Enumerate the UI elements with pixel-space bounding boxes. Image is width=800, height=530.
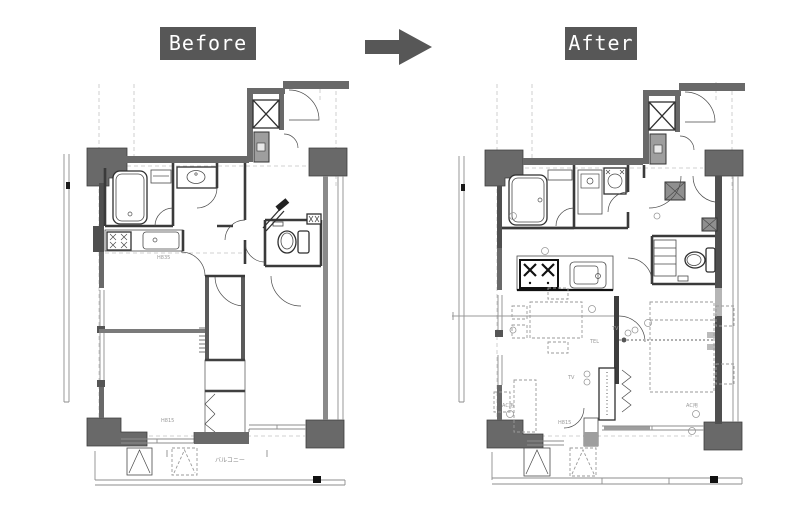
arrow-right-icon xyxy=(365,24,435,70)
bedroom-ac-label: AC用 xyxy=(686,403,698,409)
before-after-comparison: Before After xyxy=(0,0,800,530)
dining-table xyxy=(530,302,582,338)
before-label: Before xyxy=(160,27,256,60)
vanity xyxy=(578,170,602,214)
after-label: After xyxy=(565,27,637,60)
right-exterior-wall xyxy=(715,176,738,424)
window-height-label: H815 xyxy=(558,420,571,426)
room-divider-wall xyxy=(99,329,205,333)
accordion-partition xyxy=(622,370,631,412)
tel-label: TEL xyxy=(589,339,599,345)
washroom-door-arc xyxy=(197,188,217,208)
after-floor-plan: TEL TV TV AC用 AC用 xyxy=(452,80,764,504)
kitchen-island xyxy=(517,256,613,290)
entrance-door-arc xyxy=(685,92,715,122)
toilet-room xyxy=(628,236,715,284)
ac-unit-outdoor xyxy=(127,448,152,475)
exterior-pipe-lines xyxy=(459,156,465,402)
column-bottom-right xyxy=(306,420,344,448)
bathroom-door-arc xyxy=(556,208,574,226)
ac-unit-outdoor xyxy=(524,448,550,476)
closet xyxy=(199,276,245,433)
shaft-hatch-boxes xyxy=(665,182,717,231)
powder-door-arc xyxy=(608,192,628,212)
entrance-door-arc xyxy=(289,90,319,120)
kitchen: H835 xyxy=(105,230,183,261)
unit-top-wall xyxy=(523,158,643,165)
exterior-pipe-lines xyxy=(64,154,70,402)
section-line xyxy=(452,312,614,320)
living-ac-label: AC用 xyxy=(502,403,514,409)
left-exterior-wall xyxy=(93,183,105,418)
ac-unit-outdoor-planned xyxy=(172,448,197,475)
folding-door xyxy=(205,394,215,432)
sliding-panel xyxy=(604,427,650,431)
toilet-door-arc xyxy=(628,258,652,282)
balcony: バルコニー xyxy=(95,448,345,485)
balcony-label: バルコニー xyxy=(215,457,245,464)
bathroom xyxy=(105,163,173,226)
ac-unit-outdoor-planned xyxy=(570,448,596,476)
bath-counter xyxy=(151,170,171,183)
left-exterior-wall xyxy=(495,186,503,420)
before-floor-plan: H835 xyxy=(57,80,349,504)
tel-tv-outlets: TEL TV TV xyxy=(567,326,715,385)
right-exterior-wall xyxy=(323,176,343,420)
shelf xyxy=(654,240,676,276)
unit-top-wall xyxy=(125,156,249,163)
kitchen-sink xyxy=(143,232,179,249)
window-height-label: H815 xyxy=(161,418,174,424)
washing-machine xyxy=(604,168,626,194)
toilet-door-arc xyxy=(245,242,265,262)
hall-walls xyxy=(644,165,715,208)
column-bottom-left xyxy=(87,418,147,446)
bath-counter xyxy=(548,170,572,180)
column-bottom-right xyxy=(704,422,742,450)
column-bottom-left xyxy=(487,420,543,448)
counter-height-label: H835 xyxy=(157,255,170,261)
hallway-walls xyxy=(217,163,245,264)
washbasin xyxy=(177,163,217,208)
hall-door-arc xyxy=(225,220,245,240)
bathroom-door-arc xyxy=(155,208,173,226)
column-top-right xyxy=(705,150,743,176)
balcony xyxy=(492,448,742,484)
bed xyxy=(650,302,714,392)
tv-label-1: TV xyxy=(611,326,619,332)
chair xyxy=(548,342,568,353)
chair xyxy=(512,306,527,319)
arrow-shape xyxy=(365,29,432,65)
tv-label-2: TV xyxy=(567,375,575,381)
toilet-room xyxy=(245,198,321,266)
column-top-right xyxy=(309,148,347,176)
center-wall-and-tv-board xyxy=(599,296,645,420)
